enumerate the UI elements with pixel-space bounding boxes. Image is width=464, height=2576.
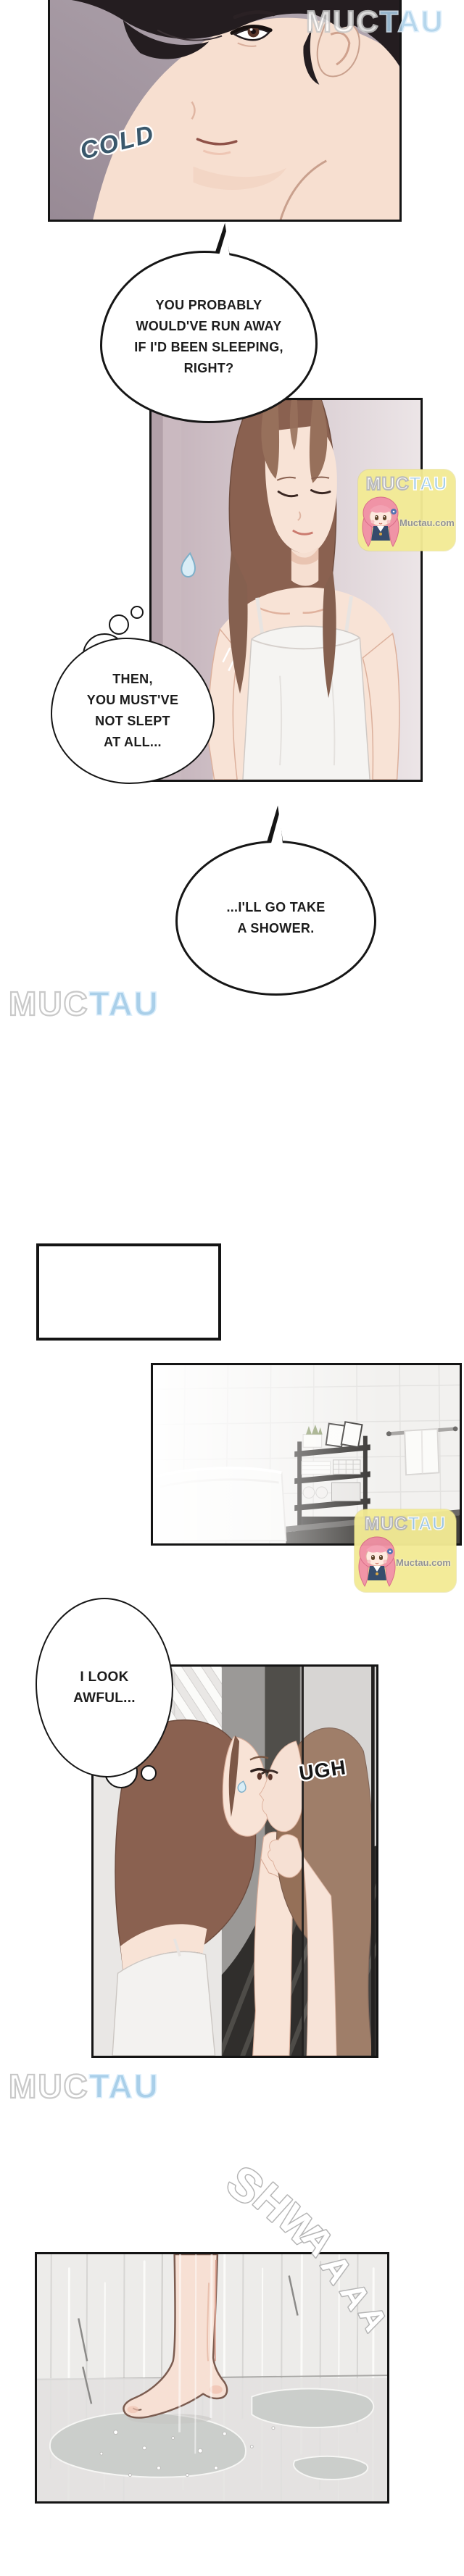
watermark-muc: MUC <box>9 2067 89 2105</box>
chibi-mascot-icon <box>357 1534 397 1588</box>
sfx-cold-text: COLD <box>78 120 157 165</box>
sfx-ugh-text: UGH <box>298 1756 348 1785</box>
muctau-watermark-mid: MUCTAU <box>9 984 159 1023</box>
chibi-mascot-icon <box>361 494 400 548</box>
speech-1-text: YOU PROBABLY WOULD'VE RUN AWAY IF I'D BE… <box>134 295 283 378</box>
speech-bubble-1: YOU PROBABLY WOULD'VE RUN AWAY IF I'D BE… <box>100 251 318 423</box>
badge-domain-text: Muctau.com <box>396 1557 451 1568</box>
badge-tau: TAU <box>408 1514 447 1534</box>
badge-domain-text: Muctau.com <box>399 517 455 528</box>
thought-bubble-2: I LOOK AWFUL... <box>36 1598 173 1777</box>
muctau-watermark-top: MUCTAU <box>306 4 444 39</box>
badge-tau: TAU <box>410 474 448 494</box>
thought-1-trail-medium <box>109 614 129 635</box>
sfx-ugh: UGH <box>290 1748 377 1795</box>
watermark-muc: MUC <box>306 4 380 38</box>
comic-page[interactable]: MUCTAU COLD YOU PROBABLY WOULD'VE RUN AW… <box>0 0 464 2576</box>
badge-muc: MUC <box>365 1514 408 1534</box>
sfx-cold: COLD <box>72 113 174 186</box>
thought-1-text: THEN, YOU MUST'VE NOT SLEPT AT ALL... <box>87 669 179 752</box>
watermark-muc: MUC <box>9 985 89 1022</box>
muctau-watermark-bottom: MUCTAU <box>9 2067 159 2106</box>
badge-logo: MUCTAU <box>366 474 447 495</box>
badge-muc: MUC <box>366 474 410 494</box>
watermark-tau: TAU <box>380 4 444 38</box>
sfx-shower-sound: S H W A A A A <box>203 2130 384 2319</box>
badge-logo: MUCTAU <box>365 1514 446 1535</box>
muctau-badge-bathroom: MUCTAU Muctau.com <box>355 1509 456 1592</box>
thought-2-text: I LOOK AWFUL... <box>73 1667 136 1709</box>
thought-1-trail-small <box>130 606 144 619</box>
watermark-tau: TAU <box>89 985 159 1022</box>
empty-speech-box <box>36 1243 221 1341</box>
watermark-tau: TAU <box>89 2067 159 2105</box>
muctau-badge-portrait: MUCTAU Muctau.com <box>358 470 455 551</box>
speech-bubble-2: ...I'LL GO TAKE A SHOWER. <box>175 841 376 996</box>
speech-2-text: ...I'LL GO TAKE A SHOWER. <box>226 897 325 939</box>
thought-2-trail-small <box>141 1765 157 1781</box>
